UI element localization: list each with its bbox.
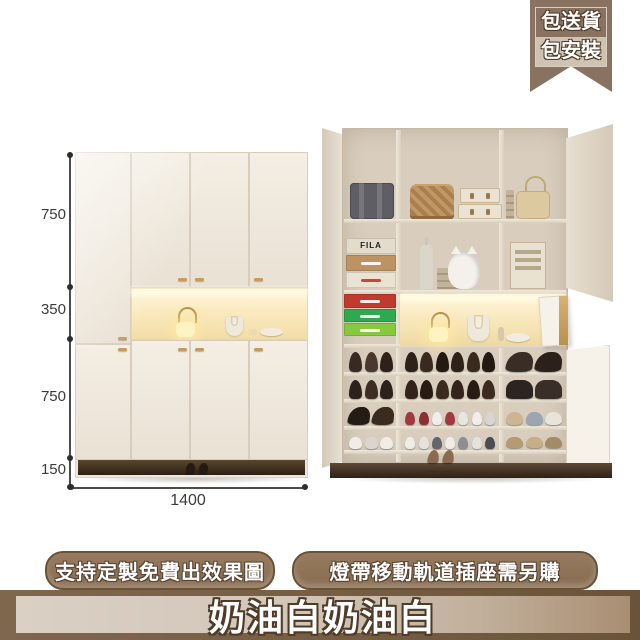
shoe [380,437,393,449]
shoe [545,412,562,425]
shoe-row [346,348,396,372]
free-install-label: 包安裝 [536,37,606,66]
floor-strip [330,463,612,478]
shoe [349,437,362,449]
dimension-height-750-top: 750 [30,206,66,223]
shoe-box-red [344,294,396,308]
shoe [482,380,495,399]
storage-box [458,204,502,219]
box-logo [360,329,381,332]
portable-lamp [428,312,450,342]
decor-ball [250,329,257,336]
shoe [467,352,480,372]
shoe [419,437,429,449]
shoe [347,407,371,425]
shoe [365,380,378,399]
door-handle [195,348,204,351]
dimension-dot [67,152,73,158]
dimension-height-150: 150 [30,461,66,478]
decor-stem [498,327,504,341]
lamp-handle [178,307,197,323]
lamp-glow [176,322,195,337]
cabinet-door [249,152,308,288]
shoe [506,380,533,399]
shoe-row [346,428,396,449]
shoe-box-light-green [344,323,396,336]
shoe [482,352,495,372]
cabinet-side-trim [559,296,568,345]
shoe [420,352,433,372]
shoe [405,437,415,449]
heel-shoe [198,463,209,475]
shoe [458,412,468,425]
dimension-width-1400: 1400 [148,492,228,510]
dimension-height-350: 350 [30,301,66,318]
shoe [485,412,495,425]
shoe [436,380,449,399]
shoe-box-green [344,309,396,322]
cabinet-base-gap [78,460,305,475]
portable-lamp [175,307,197,337]
shoe-row [504,428,564,448]
rattan-basket [410,184,454,219]
shoe [472,437,482,449]
shoe-row [402,403,498,425]
book-stack [506,190,514,219]
shoe [420,380,433,399]
dimension-dot [67,455,73,461]
box-logo [361,279,381,282]
door-handle [254,348,263,351]
shoe [432,437,442,449]
decor-bottle [420,244,433,289]
shoe [445,437,455,449]
promo-ribbon: 包送貨 包安裝 [530,0,612,92]
shoe [506,412,523,425]
shoe-box-fila: FILA [346,238,396,254]
dimension-dot [68,484,74,490]
shoe [458,437,468,449]
display-niche [131,288,308,340]
door-handle [254,278,263,281]
shoe-row [402,428,498,449]
shoe [526,412,543,425]
closed-cabinet [75,152,308,478]
shoe-row [504,376,564,399]
shoe [505,352,534,372]
door-handle [178,278,187,281]
dimension-dot [67,284,73,290]
box-logo [361,262,381,265]
shoe [349,380,362,399]
handbag-body [516,191,550,219]
door-handle [178,348,187,351]
shoe [436,352,449,372]
cabinet-shelf [344,219,566,223]
storage-box [460,188,500,203]
product-image: 包送貨 包安裝 750 350 750 150 1400 [0,0,640,640]
door-handle [118,337,127,340]
shoe [445,412,455,425]
shoe-row [402,348,498,372]
height-dimension-line [69,155,71,488]
box-logo [360,315,381,318]
banner-title: 奶油白奶油白 [209,589,437,640]
shoe-row [504,403,564,425]
cabinet-door [249,340,308,460]
shoe [405,412,415,425]
note-light-track-extra: 燈帶移動軌道插座需另購 [292,551,598,590]
decor-dish [506,333,530,342]
dimension-dot [302,484,308,490]
shoe [485,437,495,449]
open-door-left [322,128,344,468]
open-door-top-right [566,124,613,302]
shoe-box [346,255,396,271]
shoe-row [402,376,498,399]
box-logo [360,300,381,303]
lamp-glow [429,327,448,342]
note-custom-design: 支持定製免費出效果圖 [45,551,275,590]
color-banner-panel: 奶油白奶油白 [16,596,630,633]
shoe [405,352,418,372]
shoe-box [346,272,396,288]
shoe-shelf [344,450,566,454]
promo-ribbon-panel: 包送貨 包安裝 [535,7,607,67]
shoe [545,437,562,448]
cabinet-door [75,344,131,460]
open-door-bottom-right [566,345,610,475]
shoe-row [346,376,396,399]
free-delivery-label: 包送貨 [536,8,606,37]
shoe [365,437,378,449]
led-light-strip [131,288,308,296]
box-buckle [486,193,490,199]
box-buckle [486,209,490,215]
shoe [506,437,523,448]
picture-frame [510,242,546,289]
shoe [365,352,378,372]
heel-shoe [185,463,196,475]
shoe-box-brand-label: FILA [346,238,396,253]
shoe [526,437,543,448]
shoe [451,352,464,372]
shoe [535,380,562,399]
shoe [534,352,563,372]
shoe [380,352,393,372]
shoe-row [504,348,564,372]
u-vase [226,317,243,336]
width-dimension-line [70,487,306,489]
cabinet-door [190,340,249,460]
dimension-dot [67,336,73,342]
door-handle [118,348,127,351]
shoe [432,412,442,425]
cabinet-door [190,152,249,288]
shoe-row [346,403,396,425]
box-buckle [470,193,474,199]
shoe [380,380,393,399]
cabinet-door [131,340,190,460]
handbag [516,176,550,219]
shoe [419,412,429,425]
shoe [472,412,482,425]
dimension-height-750-bottom: 750 [30,388,66,405]
cabinet-door [75,152,131,344]
door-handle [195,278,204,281]
shoe [451,380,464,399]
shoe [371,407,395,425]
u-vase [468,316,489,341]
cat-figurine [448,252,480,289]
color-banner: 奶油白奶油白 [0,590,640,640]
cabinet-door [131,152,190,288]
storage-trunk [350,183,394,219]
lamp-handle [431,312,450,328]
box-buckle [470,209,474,215]
shoe [467,380,480,399]
shoe [349,352,362,372]
shoe [405,380,418,399]
decor-dish [260,328,283,336]
